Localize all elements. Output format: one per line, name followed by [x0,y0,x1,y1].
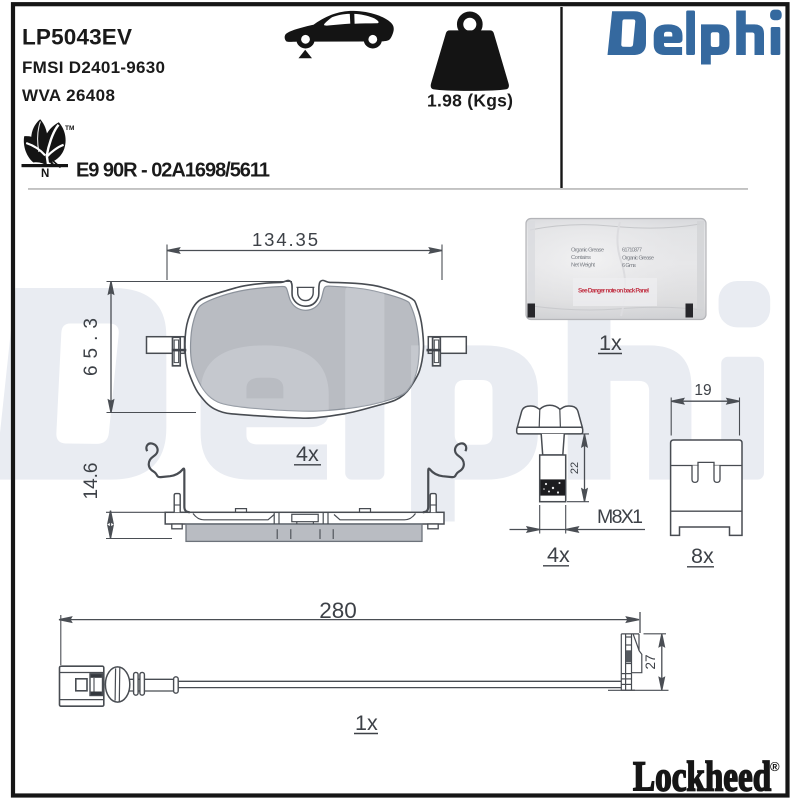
svg-text:See Danger note on back Panel: See Danger note on back Panel [578,288,649,295]
svg-text:N: N [41,168,49,180]
svg-text:1x: 1x [599,331,622,355]
svg-text:WVA 26408: WVA 26408 [22,86,115,105]
svg-text:61710377: 61710377 [622,248,642,254]
svg-text:4x: 4x [296,442,319,466]
svg-text:1.98 (Kgs): 1.98 (Kgs) [427,91,513,111]
svg-text:27: 27 [643,654,658,669]
svg-text:TM: TM [65,125,74,132]
svg-text:Contains: Contains [571,255,591,261]
svg-text:4x: 4x [547,543,570,567]
svg-text:22: 22 [569,462,581,474]
svg-text:65.3: 65.3 [81,318,102,376]
svg-text:134.35: 134.35 [252,229,318,250]
svg-text:Organic Grease: Organic Grease [571,248,604,254]
svg-text:8x: 8x [691,544,714,568]
svg-text:®: ® [770,759,780,774]
svg-text:Organic Grease: Organic Grease [622,256,654,262]
svg-text:M8X1: M8X1 [597,506,643,528]
svg-text:1x: 1x [355,711,378,735]
svg-text:6 Gms: 6 Gms [622,263,636,269]
svg-text:E9 90R - 02A1698/5611: E9 90R - 02A1698/5611 [76,160,270,182]
svg-text:Net Weight: Net Weight [571,263,595,269]
svg-text:FMSI D2401-9630: FMSI D2401-9630 [22,58,165,77]
svg-text:19: 19 [694,382,711,399]
svg-text:280: 280 [319,598,357,623]
svg-text:14.6: 14.6 [81,463,102,500]
svg-text:Lockheed: Lockheed [633,754,771,800]
svg-text:LP5043EV: LP5043EV [22,25,132,50]
